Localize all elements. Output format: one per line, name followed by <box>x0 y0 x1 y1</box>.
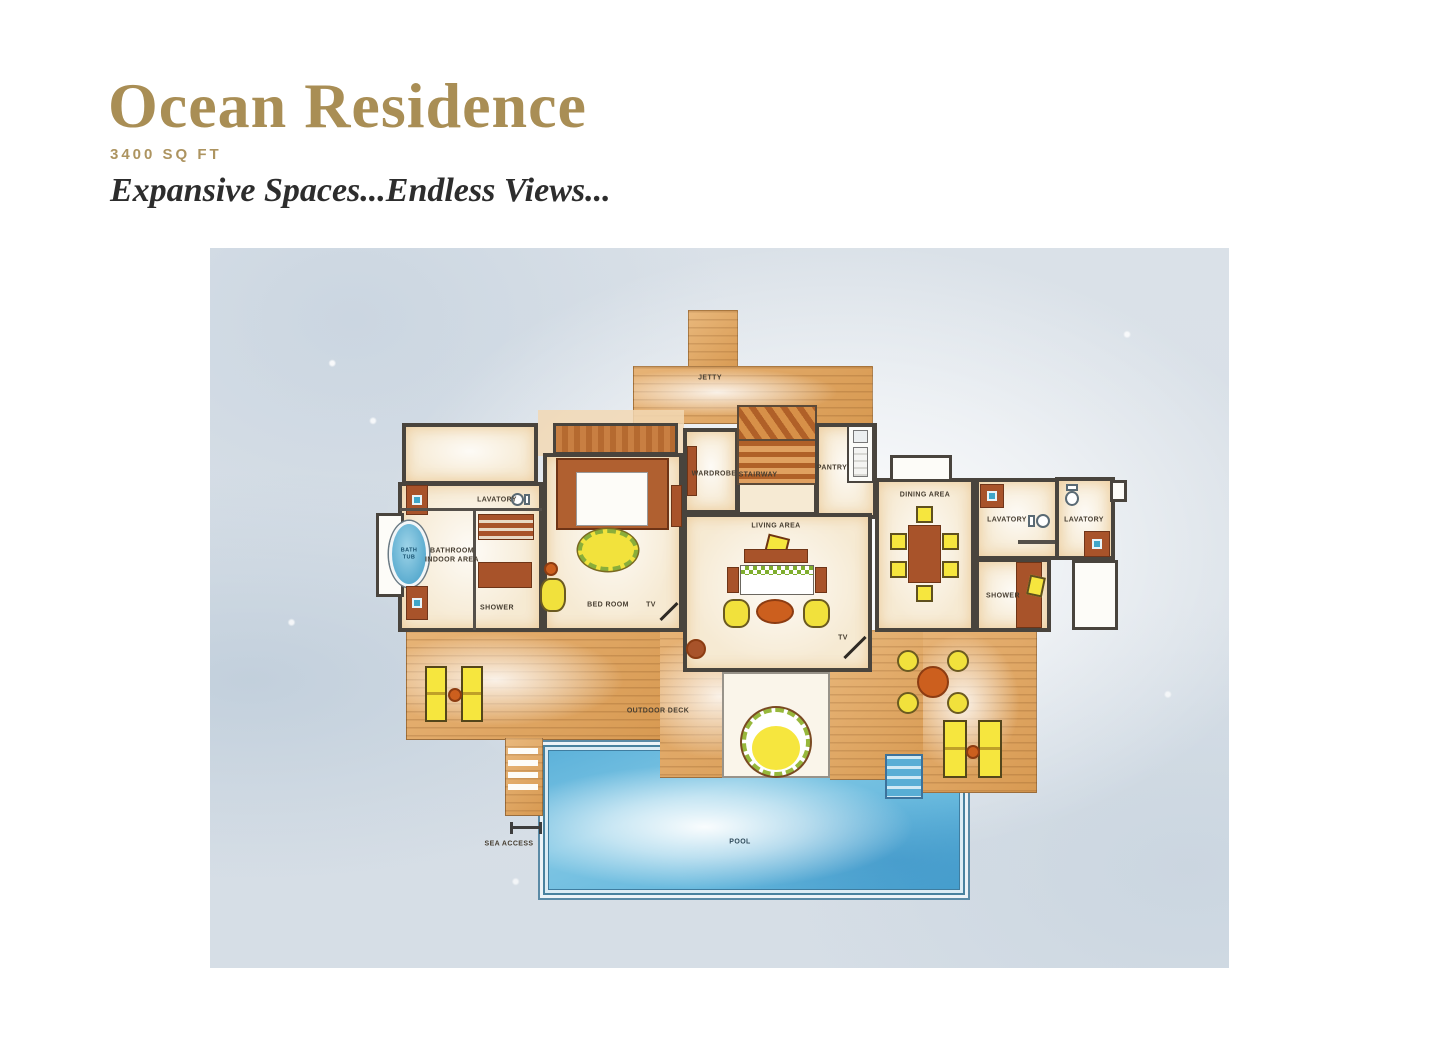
wall-segment <box>400 508 542 511</box>
area-label: 3400 SQ FT <box>110 146 222 163</box>
plant-pot <box>686 639 706 659</box>
console-table <box>744 549 808 563</box>
sea-access-steps <box>505 738 543 816</box>
vanity-sink <box>1084 531 1110 557</box>
counter <box>1018 540 1058 544</box>
dining-bay-window <box>890 455 952 482</box>
dresser <box>478 514 534 540</box>
label-pool: POOL <box>729 837 750 846</box>
room-label-wardrobe: WARDROBE <box>692 469 737 478</box>
vanity-sink <box>406 586 428 620</box>
label-tv: TV <box>838 633 848 642</box>
room-label-bed-room: BED ROOM <box>587 600 629 609</box>
sofa <box>740 565 814 595</box>
room-label-shower: SHOWER <box>986 591 1020 600</box>
outdoor-chair <box>897 692 919 714</box>
sun-lounger <box>978 720 1002 778</box>
daybed <box>742 708 810 776</box>
stove-icon <box>853 447 868 477</box>
sofa-side-table <box>727 567 739 593</box>
dining-chair <box>942 533 959 550</box>
page-title: Ocean Residence <box>108 74 587 138</box>
toilet-tank-icon <box>1066 484 1078 491</box>
daybed-cushion <box>752 726 800 770</box>
wall-cabinet <box>671 485 682 527</box>
bed-ottoman <box>578 529 638 571</box>
sink-basin <box>412 495 422 505</box>
sink-basin <box>1092 539 1102 549</box>
jetty-walkway <box>688 310 738 372</box>
armchair <box>723 599 750 628</box>
room-label-lavatory: LAVATORY <box>477 495 517 504</box>
bedroom-balcony <box>553 423 678 455</box>
dining-chair <box>942 561 959 578</box>
label-sea-access: SEA ACCESS <box>485 839 534 848</box>
room-label-stairway: STAIRWAY <box>739 470 778 479</box>
bed-mattress <box>576 472 648 526</box>
dining-chair <box>890 561 907 578</box>
tagline: Expansive Spaces...Endless Views... <box>110 172 611 210</box>
label-outdoor-deck: OUTDOOR DECK <box>627 706 689 715</box>
closet <box>1072 560 1118 630</box>
room-label-shower: SHOWER <box>480 603 514 612</box>
floorplan-image: JETTY WARDROBE STAIRWAY PANTRY LIVING AR… <box>210 248 1229 968</box>
wall-segment <box>473 508 476 630</box>
dressing-room <box>402 423 538 485</box>
kitchen-appliances <box>847 425 874 483</box>
room-label-bath-tub: BATH TUB <box>401 548 417 563</box>
room-label-dining-area: DINING AREA <box>900 490 950 499</box>
stairway-upper <box>737 405 817 441</box>
toilet-tank-icon <box>1028 515 1035 527</box>
side-table <box>966 745 980 759</box>
dining-chair <box>916 506 933 523</box>
sofa-side-table <box>815 567 827 593</box>
pantry-sink-icon <box>853 430 868 443</box>
bedroom-chair <box>540 578 566 612</box>
dining-chair <box>890 533 907 550</box>
bathroom-bench <box>478 562 532 588</box>
outdoor-chair <box>897 650 919 672</box>
coffee-table <box>756 599 794 624</box>
sun-lounger <box>425 666 447 722</box>
sofa-cushions <box>741 566 813 575</box>
toilet-icon <box>1036 514 1050 528</box>
sink-basin <box>987 491 997 501</box>
bedroom-stool <box>544 562 558 576</box>
sink-basin <box>412 598 422 608</box>
side-table <box>448 688 462 702</box>
outdoor-chair <box>947 650 969 672</box>
vanity-sink <box>980 484 1004 508</box>
room-label-bathroom: BATHROOM INDOOR AREA <box>425 547 479 566</box>
stairway-landing <box>737 485 817 515</box>
sun-lounger <box>461 666 483 722</box>
room-label-lavatory: LAVATORY <box>1064 515 1104 524</box>
room-label-pantry: PANTRY <box>817 463 847 472</box>
ladder-icon <box>510 822 542 834</box>
ladder-rung <box>510 826 542 829</box>
brochure-page: Ocean Residence 3400 SQ FT Expansive Spa… <box>0 0 1440 1050</box>
toilet-icon <box>1065 491 1079 506</box>
outdoor-table <box>917 666 949 698</box>
tv-icon <box>659 602 678 621</box>
label-tv: TV <box>646 600 656 609</box>
toilet-tank-icon <box>524 494 530 505</box>
sun-lounger <box>943 720 967 778</box>
dining-chair <box>916 585 933 602</box>
dining-table <box>908 525 941 583</box>
bed <box>556 458 669 530</box>
step-treads <box>508 748 538 796</box>
room-label-living-area: LIVING AREA <box>751 521 800 530</box>
pool-entry-steps <box>885 754 923 799</box>
armchair <box>803 599 830 628</box>
tv-stand <box>657 600 681 622</box>
wall-niche <box>1110 480 1127 502</box>
room-label-lavatory: LAVATORY <box>987 515 1027 524</box>
outdoor-chair <box>947 692 969 714</box>
room-label-jetty: JETTY <box>698 373 722 382</box>
